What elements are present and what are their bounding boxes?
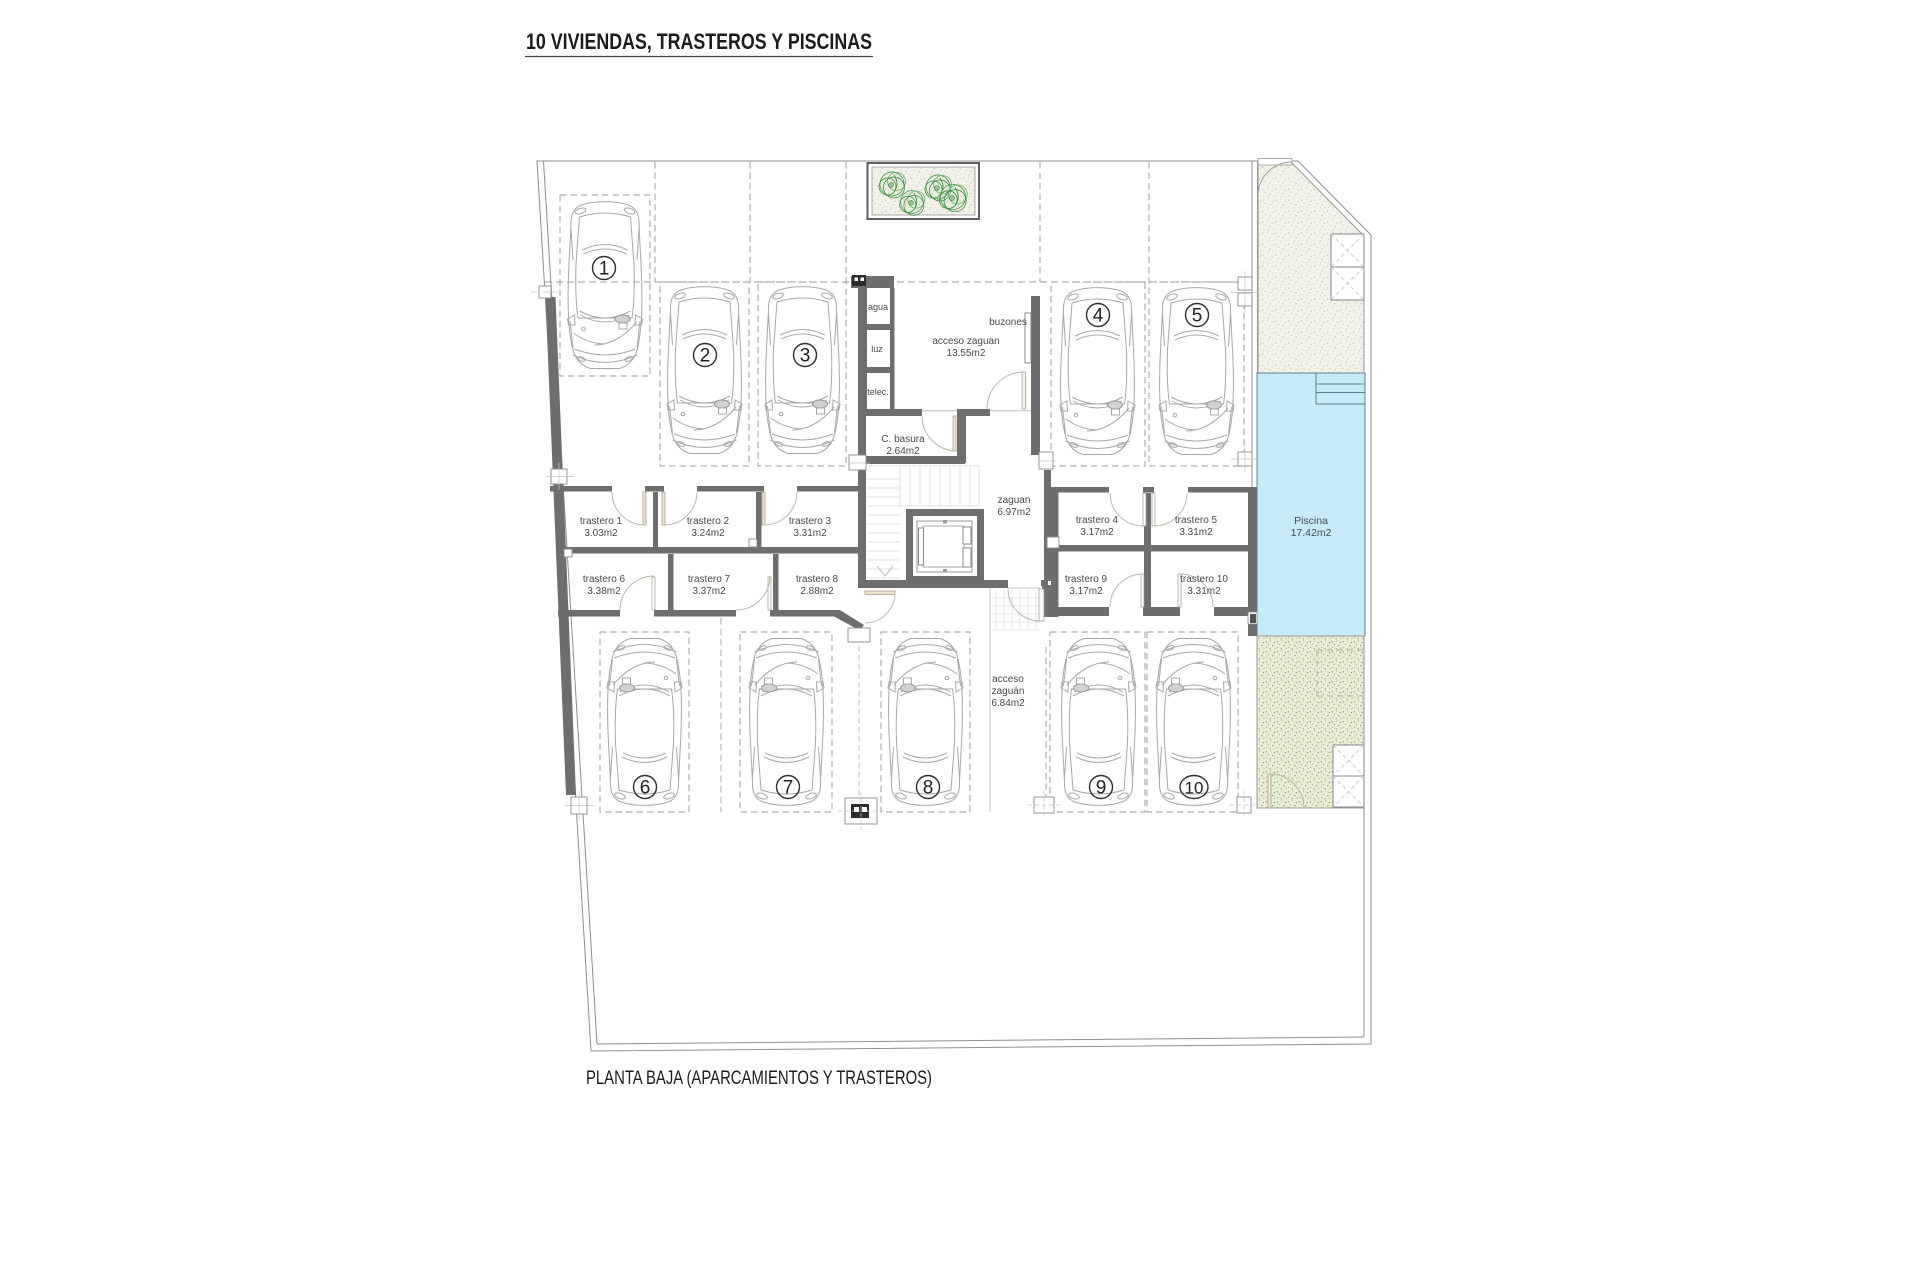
svg-text:trastero 3: trastero 3 xyxy=(789,516,832,527)
svg-text:13.55m2: 13.55m2 xyxy=(947,348,986,359)
svg-text:buzones: buzones xyxy=(989,317,1027,328)
svg-text:4: 4 xyxy=(1093,306,1104,327)
svg-text:3.24m2: 3.24m2 xyxy=(691,528,725,539)
svg-text:trastero 7: trastero 7 xyxy=(688,574,731,585)
svg-text:3.38m2: 3.38m2 xyxy=(587,586,621,597)
svg-text:zaguan: zaguan xyxy=(998,495,1031,506)
svg-text:8: 8 xyxy=(923,778,934,799)
svg-text:3.17m2: 3.17m2 xyxy=(1080,527,1114,538)
svg-text:6: 6 xyxy=(640,778,651,799)
svg-text:7: 7 xyxy=(783,778,794,799)
svg-text:2.88m2: 2.88m2 xyxy=(800,586,834,597)
svg-text:3: 3 xyxy=(800,346,811,367)
svg-text:luz: luz xyxy=(871,344,883,354)
svg-text:Piscina: Piscina xyxy=(1294,515,1328,527)
svg-text:trastero 8: trastero 8 xyxy=(796,574,839,585)
svg-text:2.64m2: 2.64m2 xyxy=(886,446,920,457)
svg-text:1: 1 xyxy=(599,259,610,280)
svg-text:trastero 2: trastero 2 xyxy=(687,516,730,527)
svg-text:acceso: acceso xyxy=(992,674,1024,685)
svg-text:9: 9 xyxy=(1096,778,1107,799)
svg-text:trastero 10: trastero 10 xyxy=(1180,574,1228,585)
svg-text:2: 2 xyxy=(700,346,711,367)
svg-text:10: 10 xyxy=(1185,779,1204,798)
svg-text:3.17m2: 3.17m2 xyxy=(1069,586,1103,597)
svg-text:trastero 6: trastero 6 xyxy=(583,574,626,585)
svg-text:3.31m2: 3.31m2 xyxy=(1187,586,1221,597)
svg-text:3.37m2: 3.37m2 xyxy=(692,586,726,597)
svg-text:3.03m2: 3.03m2 xyxy=(584,528,618,539)
svg-text:3.31m2: 3.31m2 xyxy=(793,528,827,539)
svg-text:10 VIVIENDAS, TRASTEROS Y PISC: 10 VIVIENDAS, TRASTEROS Y PISCINAS xyxy=(526,29,872,54)
svg-text:trastero 4: trastero 4 xyxy=(1076,515,1119,526)
svg-text:trastero 9: trastero 9 xyxy=(1065,574,1108,585)
svg-text:zaguán: zaguán xyxy=(992,686,1025,697)
svg-text:telec.: telec. xyxy=(867,387,889,397)
svg-text:6.97m2: 6.97m2 xyxy=(997,507,1031,518)
svg-text:trastero 5: trastero 5 xyxy=(1175,515,1218,526)
svg-text:PLANTA BAJA (APARCAMIENTOS Y T: PLANTA BAJA (APARCAMIENTOS Y TRASTEROS) xyxy=(586,1067,932,1089)
svg-text:17.42m2: 17.42m2 xyxy=(1291,527,1332,539)
svg-text:5: 5 xyxy=(1192,306,1203,327)
svg-text:6.84m2: 6.84m2 xyxy=(991,698,1025,709)
svg-text:agua: agua xyxy=(868,302,888,312)
svg-text:C. basura: C. basura xyxy=(881,434,925,445)
svg-text:trastero 1: trastero 1 xyxy=(580,516,623,527)
svg-text:acceso zaguan: acceso zaguan xyxy=(932,336,999,347)
svg-text:3.31m2: 3.31m2 xyxy=(1179,527,1213,538)
